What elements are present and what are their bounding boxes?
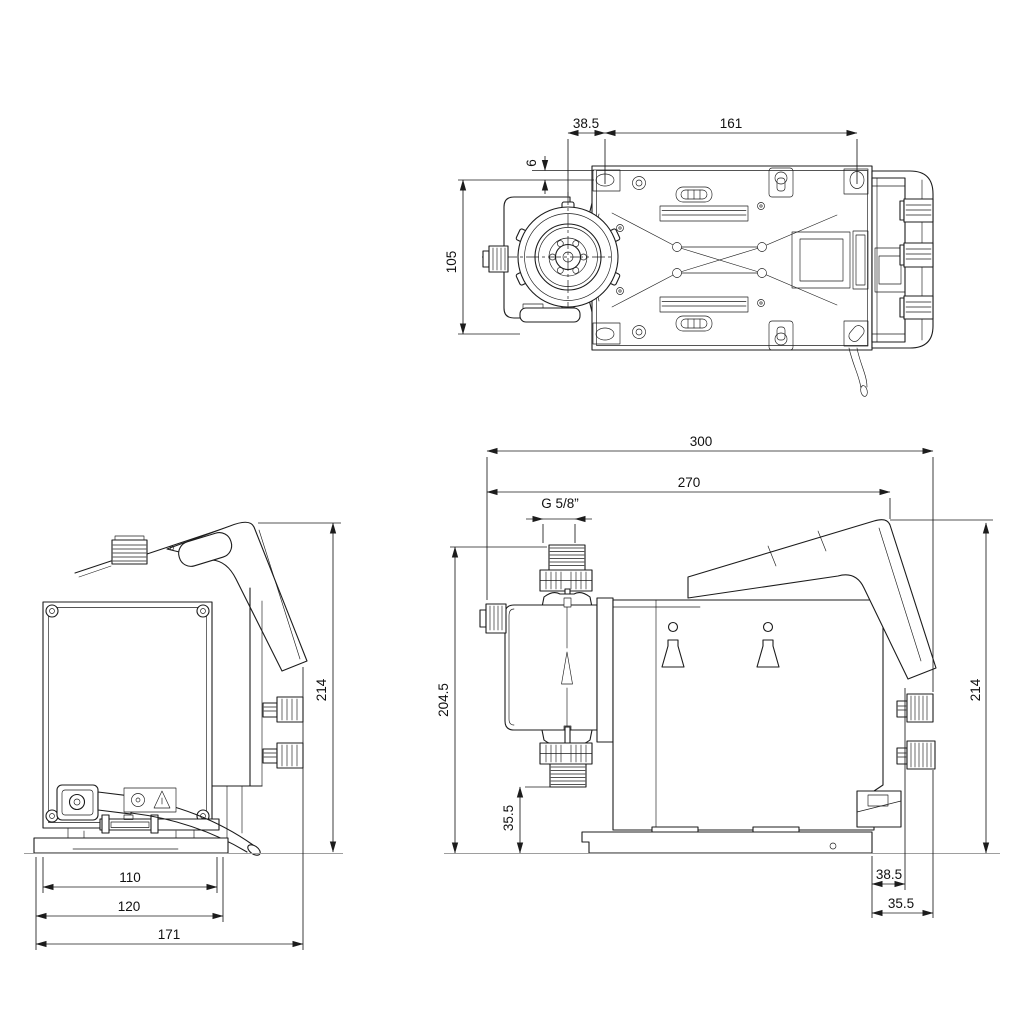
head-body xyxy=(505,605,597,730)
technical-drawing-canvas: 38.5 161 6 105 xyxy=(0,0,1024,1024)
dim-label-side-rear-offset-b: 35.5 xyxy=(888,896,914,911)
dim-label-side-total-length: 300 xyxy=(690,434,713,449)
rear-view-drawing: 214 110 120 171 xyxy=(24,522,343,950)
dosing-head-side xyxy=(480,545,597,787)
connection-knobs-top xyxy=(900,199,933,319)
technical-drawing-page: 38.5 161 6 105 xyxy=(0,0,1024,1024)
dim-label-side-head-height: 204.5 xyxy=(436,683,451,717)
dim-label-rear-base-width: 120 xyxy=(118,899,141,914)
control-cube-top xyxy=(849,171,933,397)
dim-label-side-rear-offset-a: 38.5 xyxy=(876,867,902,882)
connection-knobs-rear xyxy=(263,697,303,768)
dim-label-rear-height: 214 xyxy=(314,678,329,701)
vent-valve-side xyxy=(480,604,506,633)
suction-valve xyxy=(540,727,592,787)
body-right-side xyxy=(212,588,262,838)
dosing-head-top xyxy=(482,192,620,322)
dim-label-rear-depth: 171 xyxy=(158,927,181,942)
mounting-latch xyxy=(857,791,901,827)
connection-knobs-side xyxy=(897,694,935,769)
dim-label-connection-thread: G 5/8” xyxy=(541,496,579,511)
dim-label-top-hole-height: 105 xyxy=(444,251,459,274)
mains-cable-top xyxy=(849,348,868,397)
base-rear xyxy=(34,838,228,853)
vent-valve-top xyxy=(483,246,508,272)
dim-label-top-edge-offset: 6 xyxy=(524,159,539,167)
warning-label xyxy=(124,788,176,812)
dim-label-top-hole-span: 161 xyxy=(720,116,743,131)
dim-label-rear-inner-width: 110 xyxy=(119,870,141,885)
dim-label-side-height: 214 xyxy=(968,678,983,701)
dim-label-side-length-to-panel: 270 xyxy=(678,475,701,490)
pump-body-side xyxy=(597,598,901,830)
base-side xyxy=(582,827,872,853)
dim-label-top-offset: 38.5 xyxy=(573,116,599,131)
side-view-drawing: 300 270 G 5/8” 204.5 35.5 214 38.5 35.5 xyxy=(436,434,1000,918)
dim-label-side-valve-height: 35.5 xyxy=(501,805,516,831)
top-view-drawing: 38.5 161 6 105 xyxy=(444,116,933,397)
mounting-plate xyxy=(592,166,872,350)
